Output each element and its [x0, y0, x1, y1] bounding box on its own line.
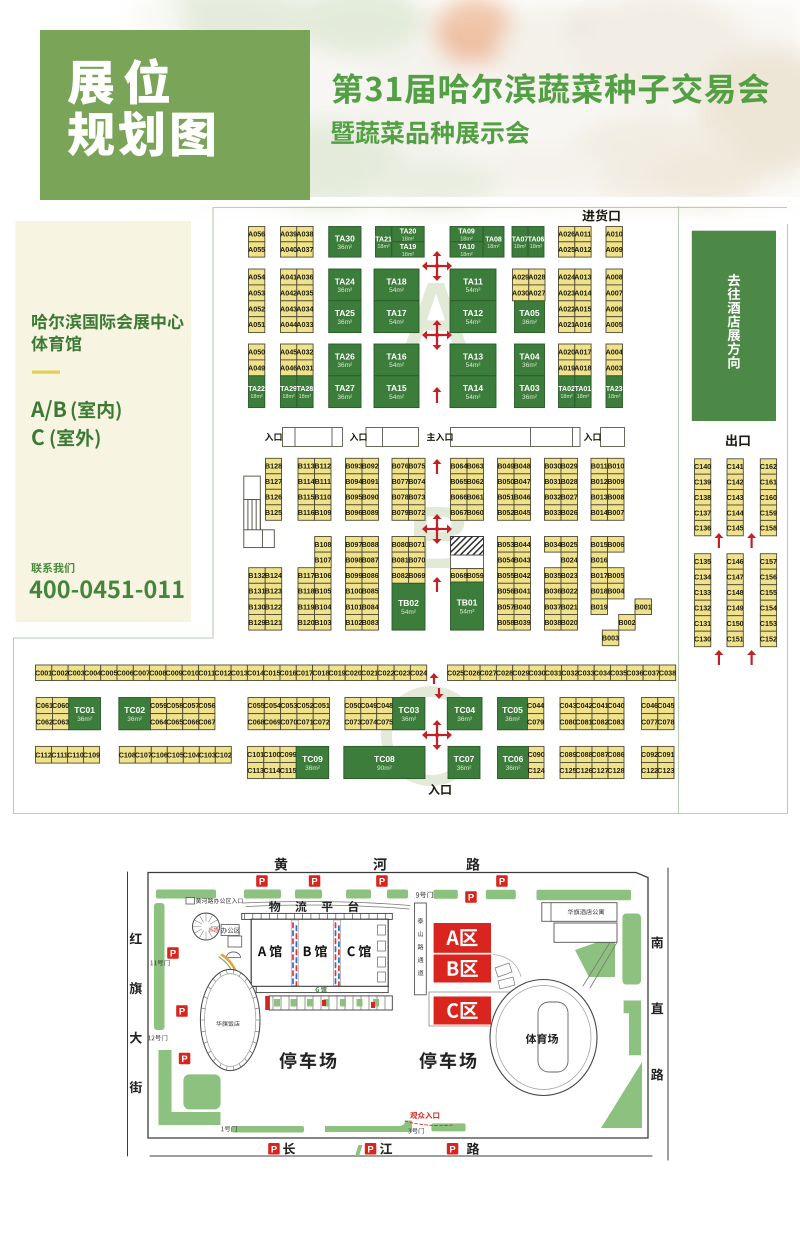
svg-text:TC08: TC08	[374, 754, 395, 764]
svg-text:C035: C035	[610, 668, 627, 677]
svg-text:B131: B131	[248, 587, 265, 596]
svg-text:B097: B097	[345, 540, 362, 549]
svg-text:C136: C136	[694, 524, 711, 533]
svg-text:C041: C041	[591, 701, 608, 710]
svg-text:B117: B117	[298, 571, 315, 580]
svg-text:C014: C014	[247, 668, 264, 677]
svg-text:TA06: TA06	[528, 236, 545, 243]
svg-text:A014: A014	[574, 288, 591, 297]
svg-text:C103: C103	[199, 750, 216, 759]
svg-text:B106: B106	[314, 571, 331, 580]
svg-text:TB01: TB01	[457, 598, 478, 608]
svg-text:B014: B014	[591, 508, 608, 517]
svg-text:P: P	[181, 1053, 187, 1064]
svg-text:B055: B055	[497, 571, 514, 580]
svg-text:C086: C086	[607, 750, 624, 759]
svg-text:C010: C010	[182, 668, 199, 677]
svg-text:B044: B044	[514, 540, 531, 549]
svg-text:C161: C161	[760, 478, 777, 487]
svg-text:B072: B072	[408, 508, 425, 517]
svg-text:C127: C127	[591, 766, 608, 775]
svg-text:B122: B122	[265, 602, 282, 611]
svg-text:54m²: 54m²	[466, 319, 482, 326]
svg-text:C149: C149	[727, 604, 744, 613]
svg-text:B101: B101	[345, 602, 362, 611]
svg-text:C066: C066	[182, 717, 199, 726]
svg-text:TA27: TA27	[335, 383, 355, 393]
svg-text:C134: C134	[694, 573, 711, 582]
svg-text:C131: C131	[694, 619, 711, 628]
svg-text:B132: B132	[248, 571, 265, 580]
svg-text:B085: B085	[362, 587, 379, 596]
svg-text:36m²: 36m²	[457, 716, 473, 723]
svg-text:B001: B001	[635, 602, 652, 611]
svg-text:TC03: TC03	[398, 705, 419, 715]
svg-text:B093: B093	[345, 462, 362, 471]
svg-text:B041: B041	[514, 587, 531, 596]
svg-text:A056: A056	[248, 230, 265, 239]
svg-text:C057: C057	[182, 701, 199, 710]
svg-text:C049: C049	[360, 701, 377, 710]
svg-text:C099: C099	[280, 750, 297, 759]
svg-text:B127: B127	[265, 477, 282, 486]
svg-text:36m²: 36m²	[77, 716, 93, 723]
svg-text:B062: B062	[467, 477, 484, 486]
svg-text:TA19: TA19	[400, 244, 417, 251]
svg-text:C140: C140	[694, 462, 711, 471]
svg-text:TA21: TA21	[375, 236, 392, 243]
svg-text:A010: A010	[606, 230, 623, 239]
svg-text:B118: B118	[298, 587, 315, 596]
svg-text:B016: B016	[591, 556, 608, 565]
svg-text:B099: B099	[345, 571, 362, 580]
svg-text:TA26: TA26	[335, 351, 355, 361]
svg-text:C111: C111	[51, 750, 67, 759]
svg-text:C147: C147	[727, 573, 744, 582]
svg-text:A040: A040	[280, 245, 297, 254]
svg-text:C017: C017	[296, 668, 313, 677]
svg-text:A027: A027	[528, 288, 545, 297]
svg-text:18m²: 18m²	[487, 244, 500, 250]
svg-text:C015: C015	[263, 668, 280, 677]
svg-text:C048: C048	[376, 701, 393, 710]
svg-text:C154: C154	[760, 604, 777, 613]
svg-text:C077: C077	[641, 717, 658, 726]
svg-text:C046: C046	[641, 701, 658, 710]
svg-text:B056: B056	[497, 587, 514, 596]
svg-text:C016: C016	[280, 668, 297, 677]
svg-text:A043: A043	[280, 304, 297, 313]
svg-text:B104: B104	[314, 602, 331, 611]
svg-text:36m²: 36m²	[522, 319, 538, 326]
svg-text:C031: C031	[545, 668, 562, 677]
svg-text:C032: C032	[561, 668, 578, 677]
svg-text:B100: B100	[345, 587, 362, 596]
svg-text:C067: C067	[198, 717, 215, 726]
svg-text:C019: C019	[329, 668, 346, 677]
svg-text:A052: A052	[248, 304, 265, 313]
svg-text:C025: C025	[447, 668, 464, 677]
svg-text:B017: B017	[591, 571, 608, 580]
svg-text:90m²: 90m²	[377, 765, 393, 772]
svg-text:C155: C155	[760, 588, 777, 597]
svg-text:C044: C044	[527, 701, 544, 710]
svg-text:B066: B066	[450, 493, 467, 502]
svg-text:54m²: 54m²	[466, 362, 482, 369]
svg-text:B125: B125	[265, 508, 282, 517]
svg-text:TA04: TA04	[519, 351, 539, 361]
svg-text:B129: B129	[248, 618, 265, 627]
svg-text:A017: A017	[574, 348, 591, 357]
svg-text:B112: B112	[314, 462, 331, 471]
svg-text:C130: C130	[694, 635, 711, 644]
svg-text:TC07: TC07	[454, 754, 475, 764]
svg-text:B115: B115	[298, 493, 315, 502]
svg-text:TA16: TA16	[386, 351, 406, 361]
svg-text:B051: B051	[497, 493, 514, 502]
svg-text:A025: A025	[558, 245, 575, 254]
svg-text:B028: B028	[561, 477, 578, 486]
svg-text:TA18: TA18	[386, 276, 406, 286]
svg-text:A037: A037	[296, 245, 313, 254]
svg-text:B009: B009	[607, 477, 624, 486]
svg-text:A053: A053	[248, 288, 265, 297]
svg-text:B105: B105	[314, 587, 331, 596]
svg-text:C087: C087	[591, 750, 608, 759]
svg-text:C018: C018	[312, 668, 329, 677]
svg-text:A039: A039	[280, 230, 297, 239]
svg-text:C056: C056	[198, 701, 215, 710]
svg-text:C144: C144	[727, 508, 744, 517]
svg-text:C162: C162	[760, 462, 777, 471]
svg-text:B083: B083	[362, 618, 379, 627]
svg-text:18m²: 18m²	[299, 394, 312, 400]
svg-text:C030: C030	[529, 668, 546, 677]
svg-text:C060: C060	[52, 701, 69, 710]
svg-text:B050: B050	[497, 477, 514, 486]
svg-text:B111: B111	[315, 477, 331, 486]
svg-text:C159: C159	[760, 508, 777, 517]
svg-text:C079: C079	[527, 717, 544, 726]
svg-text:C005: C005	[100, 668, 117, 677]
svg-text:A032: A032	[296, 348, 313, 357]
svg-text:C114: C114	[264, 766, 281, 775]
svg-text:C003: C003	[68, 668, 85, 677]
svg-text:C101: C101	[247, 750, 264, 759]
svg-text:C083: C083	[607, 717, 624, 726]
svg-text:A033: A033	[296, 320, 313, 329]
svg-text:C059: C059	[150, 701, 167, 710]
svg-text:C073: C073	[344, 717, 361, 726]
svg-text:B076: B076	[392, 462, 409, 471]
svg-text:B069: B069	[408, 571, 425, 580]
svg-text:B116: B116	[298, 508, 315, 517]
svg-text:C062: C062	[36, 717, 53, 726]
svg-text:C036: C036	[626, 668, 643, 677]
svg-text:54m²: 54m²	[389, 362, 405, 369]
svg-text:C137: C137	[694, 508, 711, 517]
svg-text:TB02: TB02	[398, 598, 419, 608]
svg-text:C068: C068	[248, 717, 265, 726]
svg-text:C153: C153	[760, 619, 777, 628]
svg-text:B004: B004	[607, 587, 624, 596]
svg-text:C058: C058	[166, 701, 183, 710]
svg-text:C109: C109	[83, 750, 100, 759]
svg-text:C065: C065	[166, 717, 183, 726]
svg-text:TA13: TA13	[463, 351, 483, 361]
svg-text:C100: C100	[263, 750, 280, 759]
svg-text:C133: C133	[694, 588, 711, 597]
svg-text:B008: B008	[607, 493, 624, 502]
svg-text:C112: C112	[35, 750, 52, 759]
svg-text:B013: B013	[591, 493, 608, 502]
svg-text:A021: A021	[558, 320, 575, 329]
svg-text:C051: C051	[313, 701, 330, 710]
svg-text:A006: A006	[606, 304, 623, 313]
svg-text:A055: A055	[248, 245, 265, 254]
svg-text:TC02: TC02	[124, 705, 145, 715]
svg-text:C022: C022	[377, 668, 394, 677]
svg-text:C157: C157	[760, 557, 777, 566]
svg-text:TA09: TA09	[458, 229, 475, 236]
svg-text:C107: C107	[135, 750, 152, 759]
svg-text:C009: C009	[166, 668, 183, 677]
svg-text:TA11: TA11	[463, 276, 483, 286]
svg-text:B018: B018	[591, 587, 608, 596]
svg-text:P: P	[271, 1144, 277, 1155]
svg-text:C034: C034	[594, 668, 611, 677]
svg-text:P: P	[259, 876, 265, 887]
svg-text:A028: A028	[528, 273, 545, 282]
svg-text:B081: B081	[392, 556, 409, 565]
svg-text:C007: C007	[133, 668, 150, 677]
svg-text:C158: C158	[760, 524, 777, 533]
svg-text:P: P	[499, 876, 505, 887]
svg-text:A030: A030	[512, 288, 529, 297]
svg-text:C027: C027	[480, 668, 497, 677]
svg-text:C011: C011	[198, 668, 215, 677]
svg-text:B087: B087	[362, 556, 379, 565]
svg-text:C054: C054	[264, 701, 281, 710]
svg-text:C150: C150	[727, 619, 744, 628]
svg-text:P: P	[449, 1144, 455, 1155]
svg-text:B023: B023	[561, 571, 578, 580]
svg-text:TA03: TA03	[519, 383, 539, 393]
svg-text:C002: C002	[51, 668, 68, 677]
svg-text:54m²: 54m²	[460, 608, 476, 615]
svg-text:A015: A015	[574, 304, 591, 313]
svg-text:C104: C104	[183, 750, 200, 759]
svg-text:C026: C026	[463, 668, 480, 677]
svg-text:C064: C064	[150, 717, 167, 726]
svg-text:P: P	[170, 948, 176, 959]
svg-text:A034: A034	[296, 304, 313, 313]
svg-text:B064: B064	[450, 462, 467, 471]
svg-text:C078: C078	[657, 717, 674, 726]
svg-text:54m²: 54m²	[466, 394, 482, 401]
svg-text:TA07: TA07	[512, 236, 529, 243]
svg-text:A050: A050	[248, 348, 265, 357]
svg-text:B071: B071	[408, 540, 425, 549]
svg-text:B042: B042	[514, 571, 531, 580]
svg-text:P: P	[367, 1144, 373, 1155]
svg-text:B027: B027	[561, 493, 578, 502]
svg-text:B098: B098	[345, 556, 362, 565]
svg-text:C105: C105	[167, 750, 184, 759]
svg-text:B067: B067	[450, 508, 467, 517]
svg-text:B070: B070	[408, 556, 425, 565]
svg-text:A019: A019	[558, 363, 575, 372]
svg-text:B108: B108	[314, 540, 331, 549]
svg-text:TA29: TA29	[280, 386, 297, 393]
svg-text:A054: A054	[248, 273, 265, 282]
svg-text:B033: B033	[544, 508, 561, 517]
svg-text:36m²: 36m²	[127, 716, 143, 723]
svg-text:B068: B068	[450, 571, 467, 580]
svg-text:A045: A045	[280, 348, 297, 357]
svg-text:18m²: 18m²	[282, 394, 295, 400]
svg-text:C148: C148	[727, 588, 744, 597]
svg-text:B030: B030	[544, 462, 561, 471]
svg-text:A035: A035	[296, 288, 313, 297]
svg-text:A016: A016	[574, 320, 591, 329]
svg-text:C142: C142	[727, 478, 744, 487]
svg-text:A049: A049	[248, 363, 265, 372]
svg-text:A036: A036	[296, 273, 313, 282]
svg-text:B052: B052	[497, 508, 514, 517]
svg-text:B121: B121	[265, 618, 282, 627]
svg-text:TA28: TA28	[297, 386, 314, 393]
svg-text:A038: A038	[296, 230, 313, 239]
svg-text:C113: C113	[247, 766, 264, 775]
svg-text:A042: A042	[280, 288, 297, 297]
svg-text:B075: B075	[408, 462, 425, 471]
svg-text:C126: C126	[575, 766, 592, 775]
svg-text:B079: B079	[392, 508, 409, 517]
svg-text:C020: C020	[345, 668, 362, 677]
svg-text:B036: B036	[544, 587, 561, 596]
svg-text:36m²: 36m²	[457, 765, 473, 772]
svg-text:B063: B063	[467, 462, 484, 471]
svg-text:TC05: TC05	[502, 705, 523, 715]
svg-text:C045: C045	[657, 701, 674, 710]
svg-text:C108: C108	[119, 750, 136, 759]
svg-text:B091: B091	[362, 477, 379, 486]
svg-text:C061: C061	[36, 701, 53, 710]
svg-text:C004: C004	[84, 668, 101, 677]
svg-text:A009: A009	[606, 245, 623, 254]
svg-text:C092: C092	[641, 750, 658, 759]
svg-text:TC09: TC09	[302, 754, 323, 764]
svg-text:C143: C143	[727, 493, 744, 502]
svg-text:B107: B107	[314, 556, 331, 565]
svg-text:B124: B124	[265, 571, 282, 580]
svg-text:B090: B090	[362, 493, 379, 502]
svg-text:TA30: TA30	[335, 233, 355, 243]
svg-text:C106: C106	[151, 750, 168, 759]
svg-text:C151: C151	[727, 635, 744, 644]
svg-text:TA14: TA14	[463, 383, 483, 393]
svg-text:C088: C088	[575, 750, 592, 759]
svg-text:B074: B074	[408, 477, 425, 486]
svg-text:B019: B019	[591, 602, 608, 611]
svg-text:A004: A004	[606, 348, 623, 357]
svg-text:36m²: 36m²	[401, 716, 417, 723]
svg-text:C102: C102	[215, 750, 232, 759]
svg-text:B059: B059	[467, 571, 484, 580]
svg-text:B026: B026	[561, 508, 578, 517]
svg-text:B021: B021	[561, 602, 578, 611]
svg-text:A023: A023	[558, 288, 575, 297]
svg-text:C081: C081	[575, 717, 592, 726]
svg-text:A012: A012	[574, 245, 591, 254]
svg-text:B054: B054	[497, 556, 514, 565]
svg-text:B047: B047	[514, 477, 531, 486]
svg-text:C069: C069	[264, 717, 281, 726]
svg-text:B031: B031	[544, 477, 561, 486]
svg-text:C089: C089	[559, 750, 576, 759]
svg-text:C135: C135	[694, 557, 711, 566]
svg-text:B082: B082	[392, 571, 409, 580]
svg-text:B092: B092	[362, 462, 379, 471]
svg-text:C146: C146	[727, 557, 744, 566]
svg-text:P: P	[179, 1006, 185, 1017]
svg-text:B049: B049	[497, 462, 514, 471]
svg-text:18m²: 18m²	[460, 252, 473, 258]
svg-text:36m²: 36m²	[522, 362, 538, 369]
svg-text:TA23: TA23	[606, 386, 623, 393]
svg-text:C160: C160	[760, 493, 777, 502]
svg-text:B084: B084	[362, 602, 379, 611]
svg-text:A041: A041	[280, 273, 297, 282]
svg-text:TA12: TA12	[463, 308, 483, 318]
svg-text:B094: B094	[345, 477, 362, 486]
svg-text:36m²: 36m²	[337, 244, 353, 251]
svg-text:A046: A046	[280, 363, 297, 372]
svg-text:A008: A008	[606, 273, 623, 282]
svg-text:C029: C029	[512, 668, 529, 677]
svg-text:C082: C082	[591, 717, 608, 726]
svg-text:36m²: 36m²	[522, 394, 538, 401]
svg-text:B113: B113	[298, 462, 315, 471]
svg-text:A051: A051	[248, 320, 265, 329]
svg-text:B038: B038	[544, 618, 561, 627]
svg-text:18m²: 18m²	[560, 394, 573, 400]
svg-text:C028: C028	[496, 668, 513, 677]
svg-text:C040: C040	[607, 701, 624, 710]
svg-text:TA22: TA22	[248, 386, 265, 393]
svg-text:A018: A018	[574, 363, 591, 372]
svg-text:C128: C128	[607, 766, 624, 775]
svg-text:36m²: 36m²	[337, 394, 353, 401]
svg-text:B012: B012	[591, 477, 608, 486]
svg-text:A022: A022	[558, 304, 575, 313]
svg-text:A003: A003	[606, 363, 623, 372]
svg-text:B060: B060	[467, 508, 484, 517]
svg-text:B034: B034	[544, 540, 561, 549]
svg-text:B015: B015	[591, 540, 608, 549]
svg-text:B120: B120	[298, 618, 315, 627]
svg-text:18m²: 18m²	[250, 394, 263, 400]
svg-text:C071: C071	[296, 717, 313, 726]
svg-text:B128: B128	[265, 462, 282, 471]
svg-text:TA24: TA24	[335, 276, 355, 286]
svg-text:B029: B029	[561, 462, 578, 471]
svg-text:B053: B053	[497, 540, 514, 549]
svg-text:54m²: 54m²	[389, 319, 405, 326]
svg-text:C110: C110	[67, 750, 84, 759]
svg-text:B061: B061	[467, 493, 484, 502]
